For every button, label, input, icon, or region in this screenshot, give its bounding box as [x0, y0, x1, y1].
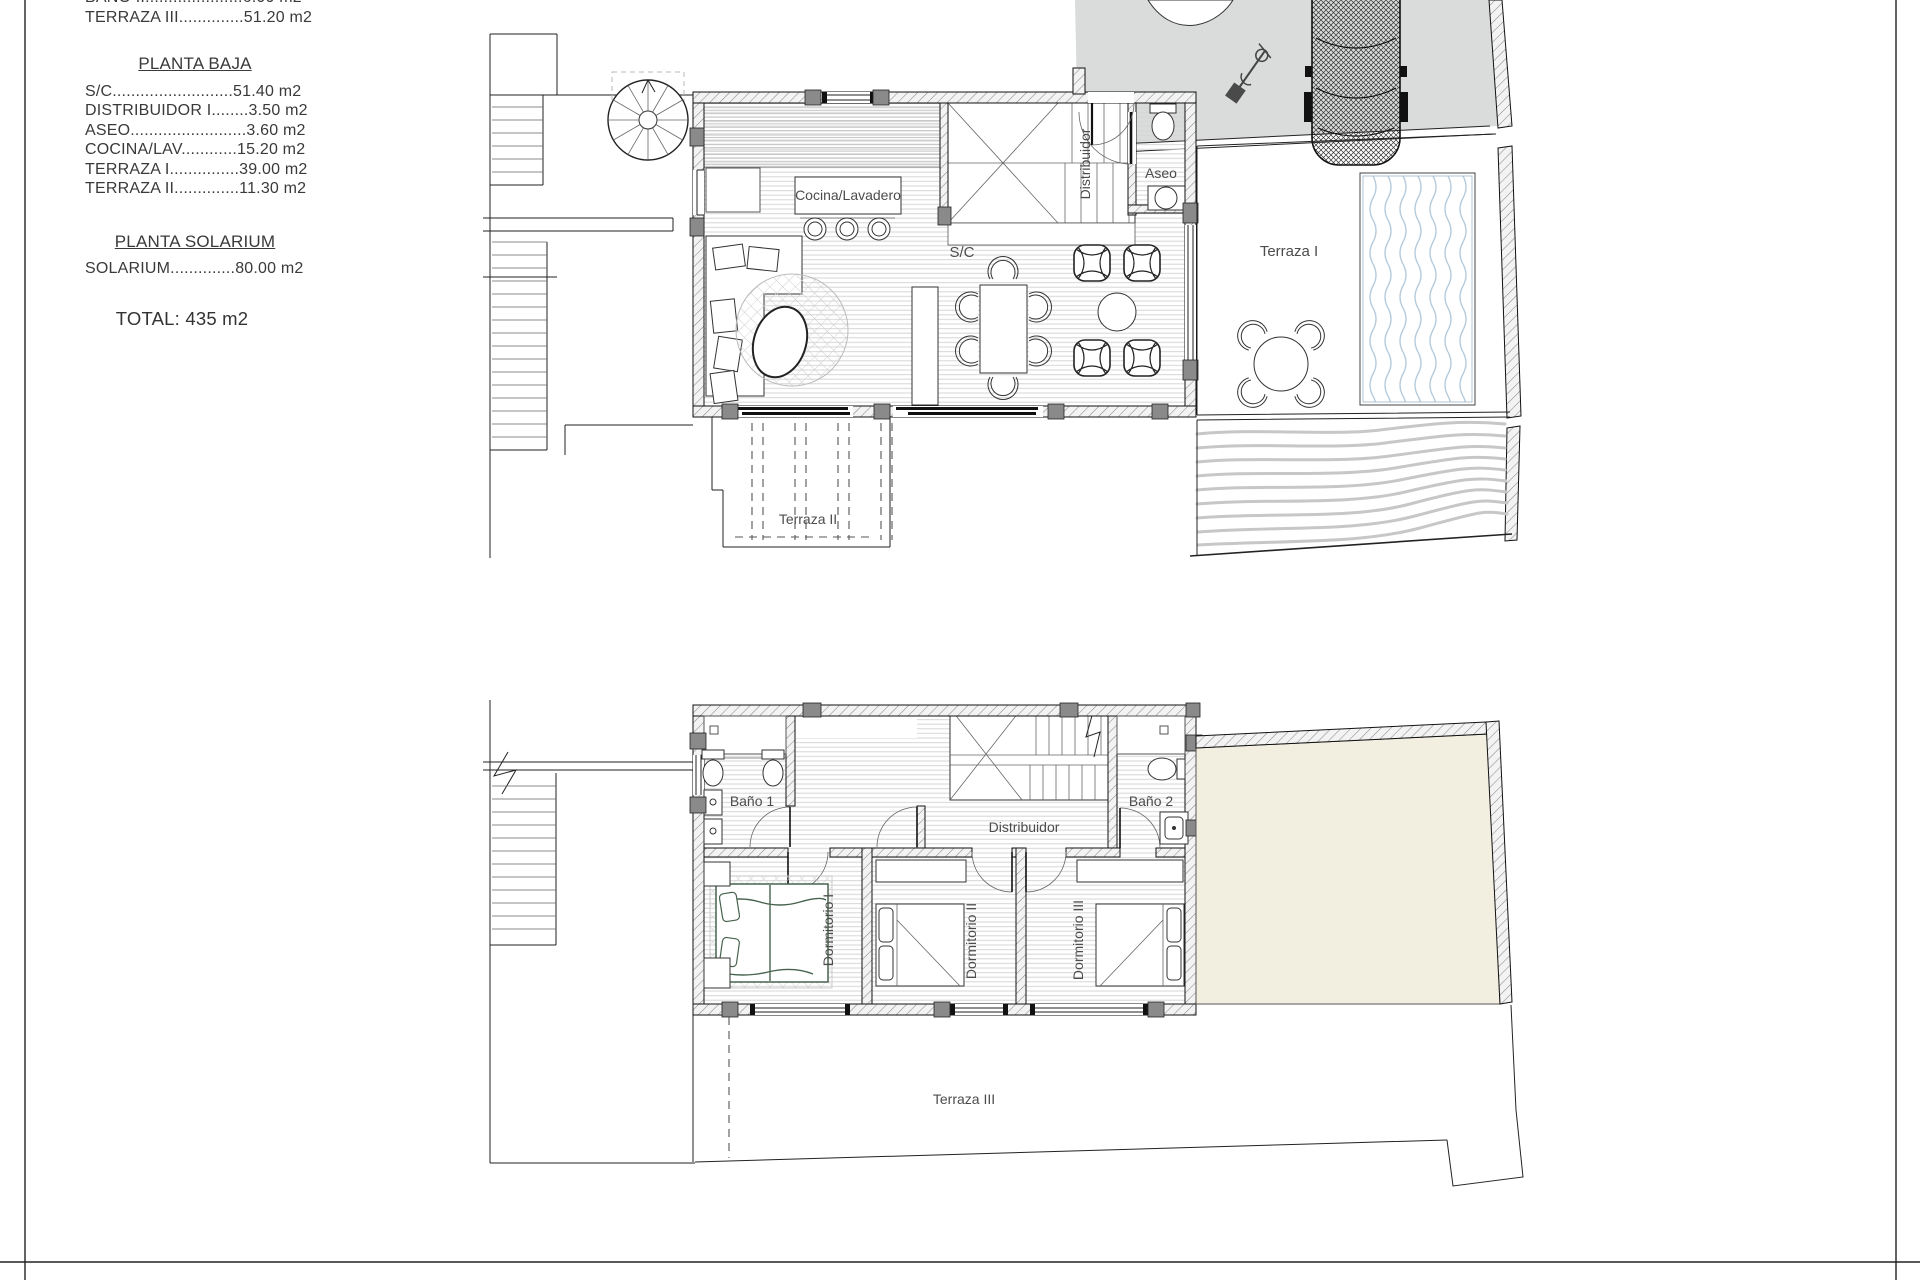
- wall-dorm1-2: [862, 848, 872, 1004]
- car: [1304, 0, 1408, 165]
- terraza-2: Terraza II: [712, 417, 892, 547]
- kitchen-area: Cocina/Lavadero: [795, 177, 901, 240]
- toilet2: [1148, 758, 1176, 780]
- kitchen-cabinet: [706, 168, 760, 212]
- pool: [1360, 173, 1475, 405]
- closet: [1077, 860, 1183, 882]
- wall-hall: [917, 806, 925, 848]
- hall-label: Distribuidor: [1077, 128, 1093, 199]
- window-bottom-ff-2: [950, 1004, 1008, 1015]
- wall-left: [693, 103, 704, 417]
- staircase-ff: [950, 708, 1108, 800]
- living-room-label: S/C: [949, 244, 974, 261]
- terraza-1: Terraza I: [1197, 134, 1510, 420]
- round-sink: [1155, 187, 1177, 209]
- bano1-label: Baño 1: [730, 793, 775, 809]
- ground-floor-plan: Cocina/Lavadero: [483, 0, 1521, 558]
- patio-table-set: [1231, 314, 1330, 413]
- sink1a: [704, 790, 722, 815]
- floorplan-sheet: BAÑO II.....................6.00 m2 TERR…: [0, 0, 1920, 1280]
- closet: [876, 860, 966, 882]
- window-bottom-right: [893, 406, 1043, 417]
- hall-ff-label: Distribuidor: [989, 819, 1060, 835]
- toilet1: [703, 760, 723, 786]
- dormitorio2-label: Dormitorio II: [963, 903, 979, 979]
- shower1: [704, 716, 786, 754]
- window-top: [822, 92, 875, 103]
- window-bottom-ff-3: [1030, 1004, 1148, 1015]
- toilet: [1152, 112, 1174, 140]
- dormitorio2-room: Dormitorio II: [876, 860, 979, 986]
- wall-bano1: [786, 716, 795, 806]
- exterior-stairs-upper: [490, 95, 543, 185]
- dormitorio1-label: Dormitorio I: [820, 894, 836, 966]
- ground-floor-building: Cocina/Lavadero: [690, 68, 1198, 419]
- window-left-ff: [693, 755, 704, 795]
- nightstand: [704, 958, 730, 988]
- kitchen-counter: [704, 103, 940, 167]
- nightstand: [704, 862, 730, 886]
- spiral-staircase: [608, 72, 688, 160]
- door-left: [693, 170, 704, 215]
- exterior-stairs-lower: [490, 242, 547, 450]
- wall-bano2: [1108, 708, 1117, 848]
- stove-burners: [804, 218, 890, 240]
- window-right: [1185, 225, 1196, 360]
- break-line: [494, 752, 516, 794]
- coffee-table: [1098, 293, 1136, 331]
- plans-drawing: Cocina/Lavadero: [0, 0, 1920, 1280]
- wall-dorm2-3: [1016, 848, 1026, 1004]
- solarium-roof: [1196, 721, 1512, 1004]
- terraza1-label: Terraza I: [1260, 243, 1318, 260]
- terrain-contours: [1190, 420, 1512, 556]
- wall-right-ff: [1185, 716, 1196, 1004]
- window-bottom-ff-1: [750, 1004, 850, 1015]
- bidet1: [763, 760, 783, 786]
- terraza2-label: Terraza II: [779, 511, 837, 527]
- cabinet-column: [912, 287, 938, 405]
- bed2: [876, 904, 964, 986]
- patio-table: [1254, 337, 1308, 391]
- bano2-label: Baño 2: [1129, 793, 1174, 809]
- aseo-label: Aseo: [1145, 165, 1177, 181]
- bed3: [1096, 904, 1184, 986]
- terraza3-label: Terraza III: [933, 1091, 995, 1107]
- dining-table: [980, 285, 1027, 373]
- site-boundary-ff: [483, 700, 693, 1163]
- wall-top-ff: [693, 705, 1196, 716]
- interior-staircase: [948, 103, 1135, 245]
- terraza-3: Terraza III: [490, 1005, 1523, 1186]
- shower2: [1117, 716, 1185, 754]
- window-bottom-left: [728, 406, 853, 417]
- dormitorio3-label: Dormitorio III: [1070, 900, 1086, 980]
- first-floor-plan: Baño 1 Baño 2: [483, 700, 1523, 1186]
- wall-stairs: [940, 103, 948, 217]
- dormitorio1-room: Dormitorio I: [704, 862, 836, 988]
- sink1b: [704, 819, 722, 844]
- double-bed: [716, 884, 828, 982]
- kitchen-label: Cocina/Lavadero: [795, 187, 901, 203]
